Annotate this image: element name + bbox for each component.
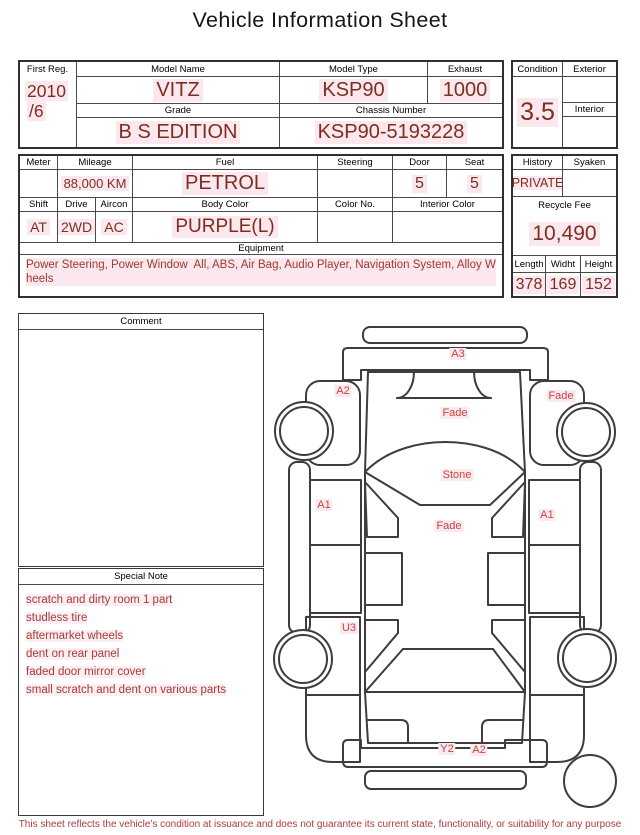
rear-left-wheel bbox=[274, 630, 332, 688]
fuel-header: Fuel bbox=[133, 156, 318, 170]
condition-header: Condition bbox=[513, 62, 563, 77]
drive-value: 2WD bbox=[58, 212, 96, 243]
fade-label-cabin: Fade bbox=[434, 520, 463, 532]
syaken-value bbox=[563, 170, 616, 197]
grade-header: Grade bbox=[77, 104, 280, 118]
right-sill bbox=[580, 462, 601, 633]
history-box: History Syaken PRIVATE Recycle Fee 10,49… bbox=[511, 154, 618, 298]
seat-header: Seat bbox=[447, 156, 502, 170]
width-value: 169 bbox=[546, 273, 581, 296]
vehicle-information-sheet: Vehicle Information Sheet First Reg. 201… bbox=[0, 0, 640, 835]
identity-table: First Reg. 2010 /6 Model Name Model Type… bbox=[18, 60, 504, 149]
meter-header: Meter bbox=[20, 156, 58, 170]
aircon-header: Aircon bbox=[96, 198, 133, 212]
exhaust-value: 1000 bbox=[428, 77, 502, 104]
seat-value: 5 bbox=[447, 170, 502, 198]
front-bumper-main-bar bbox=[343, 348, 548, 380]
damage-label-a3-front-bumper: A3 bbox=[449, 348, 466, 360]
syaken-header: Syaken bbox=[563, 156, 616, 170]
first-reg-value-month: /6 bbox=[27, 101, 46, 121]
exterior-value bbox=[563, 77, 616, 103]
steering-header: Steering bbox=[318, 156, 393, 170]
door-header: Door bbox=[393, 156, 447, 170]
exterior-header: Exterior bbox=[563, 62, 616, 77]
body-color-header: Body Color bbox=[133, 198, 318, 212]
rear-window-left bbox=[365, 649, 403, 692]
fuel-value: PETROL bbox=[133, 170, 318, 198]
equipment-value: Power Steering, Power Window All, ABS, A… bbox=[20, 255, 502, 296]
damage-label-y2-rear-bumper: Y2 bbox=[438, 743, 455, 755]
front-bumper-top-bar bbox=[363, 327, 527, 343]
mileage-header: Mileage bbox=[58, 156, 133, 170]
damage-label-u3-left-quarter: U3 bbox=[340, 622, 358, 634]
interior-header: Interior bbox=[563, 103, 616, 117]
interior-color-header: Interior Color bbox=[393, 198, 502, 212]
meter-value bbox=[20, 170, 58, 198]
interior-color-value bbox=[393, 212, 502, 243]
color-no-value bbox=[318, 212, 393, 243]
condition-value: 3.5 bbox=[513, 77, 563, 147]
first-reg-value-year: 2010 bbox=[25, 81, 68, 101]
equipment-header: Equipment bbox=[20, 243, 502, 255]
exhaust-header: Exhaust bbox=[428, 62, 502, 77]
disclaimer-text: This sheet reflects the vehicle's condit… bbox=[0, 819, 640, 830]
front-left-wheel bbox=[275, 402, 333, 460]
specs-table: Meter Mileage Fuel Steering Door Seat 88… bbox=[18, 154, 504, 298]
damage-label-a2-rear-bumper: A2 bbox=[470, 744, 487, 756]
left-tail-lamp bbox=[368, 720, 408, 743]
right-b-pillar bbox=[492, 482, 525, 537]
special-note-line: small scratch and dent on various parts bbox=[26, 680, 230, 698]
chassis-number-header: Chassis Number bbox=[280, 104, 502, 118]
door-value: 5 bbox=[393, 170, 447, 198]
mileage-value: 88,000 KM bbox=[58, 170, 133, 198]
special-note-line: faded door mirror cover bbox=[26, 662, 230, 680]
left-c-pillar bbox=[365, 620, 398, 672]
height-header: Height bbox=[581, 256, 616, 273]
fade-label-right-fender: Fade bbox=[546, 390, 575, 402]
chassis-number-value: KSP90-5193228 bbox=[280, 118, 502, 147]
car-outline-drawing bbox=[273, 315, 640, 810]
page-title: Vehicle Information Sheet bbox=[0, 8, 640, 33]
condition-box: Condition Exterior 3.5 Interior bbox=[511, 60, 618, 149]
right-door-panel bbox=[529, 480, 580, 613]
right-c-pillar bbox=[492, 620, 525, 672]
history-value: PRIVATE bbox=[513, 170, 563, 197]
right-inner-panel bbox=[488, 553, 525, 605]
interior-value bbox=[563, 117, 616, 147]
special-note-header: Special Note bbox=[19, 569, 263, 585]
damage-label-a1-right-door: A1 bbox=[538, 509, 555, 521]
damage-label-a2-left-fender: A2 bbox=[334, 385, 351, 397]
special-note-line: scratch and dirty room 1 part bbox=[26, 590, 230, 608]
aircon-value: AC bbox=[96, 212, 133, 243]
comment-box: Comment bbox=[18, 313, 264, 567]
left-b-pillar bbox=[365, 482, 398, 537]
special-note-box: Special Note scratch and dirty room 1 pa… bbox=[18, 568, 264, 816]
left-sill bbox=[289, 462, 310, 633]
color-no-header: Color No. bbox=[318, 198, 393, 212]
special-note-list: scratch and dirty room 1 part studless t… bbox=[26, 590, 230, 698]
rear-right-wheel bbox=[558, 629, 616, 687]
history-header: History bbox=[513, 156, 563, 170]
rear-window-right bbox=[493, 649, 525, 692]
special-note-line: dent on rear panel bbox=[26, 644, 230, 662]
length-value: 378 bbox=[513, 273, 546, 296]
first-reg-label: First Reg. bbox=[27, 64, 74, 75]
left-inner-panel bbox=[365, 553, 402, 605]
special-note-line: studless tire bbox=[26, 608, 230, 626]
shift-value: AT bbox=[20, 212, 58, 243]
recycle-fee-header: Recycle Fee bbox=[513, 197, 616, 213]
fade-label-windshield: Fade bbox=[440, 407, 469, 419]
spare-wheel bbox=[564, 755, 616, 807]
windshield-left-arc bbox=[397, 372, 414, 398]
rear-bumper-bottom-bar bbox=[365, 771, 526, 789]
length-header: Length bbox=[513, 256, 546, 273]
front-right-wheel bbox=[557, 403, 615, 461]
rear-panel bbox=[365, 692, 525, 743]
field-first-reg: First Reg. 2010 /6 bbox=[20, 62, 77, 147]
model-name-header: Model Name bbox=[77, 62, 280, 77]
model-type-value: KSP90 bbox=[280, 77, 428, 104]
windshield-right-arc bbox=[474, 372, 491, 398]
grade-value: B S EDITION bbox=[77, 118, 280, 147]
hood-left-edge bbox=[365, 372, 368, 472]
body-color-value: PURPLE(L) bbox=[133, 212, 318, 243]
model-type-header: Model Type bbox=[280, 62, 428, 77]
car-damage-diagram: A3 A2 Fade Fade Stone A1 A1 Fade U3 Y2 A… bbox=[273, 315, 640, 810]
width-header: Widht bbox=[546, 256, 581, 273]
comment-header: Comment bbox=[19, 314, 263, 330]
model-name-value: VITZ bbox=[77, 77, 280, 104]
special-note-line: aftermarket wheels bbox=[26, 626, 230, 644]
recycle-fee-value: 10,490 bbox=[513, 213, 616, 256]
height-value: 152 bbox=[581, 273, 616, 296]
steering-value bbox=[318, 170, 393, 198]
stone-label-roof: Stone bbox=[441, 469, 474, 481]
shift-header: Shift bbox=[20, 198, 58, 212]
damage-label-a1-left-door: A1 bbox=[315, 499, 332, 511]
hood-right-edge bbox=[520, 372, 525, 472]
comment-value bbox=[19, 329, 263, 566]
drive-header: Drive bbox=[58, 198, 96, 212]
